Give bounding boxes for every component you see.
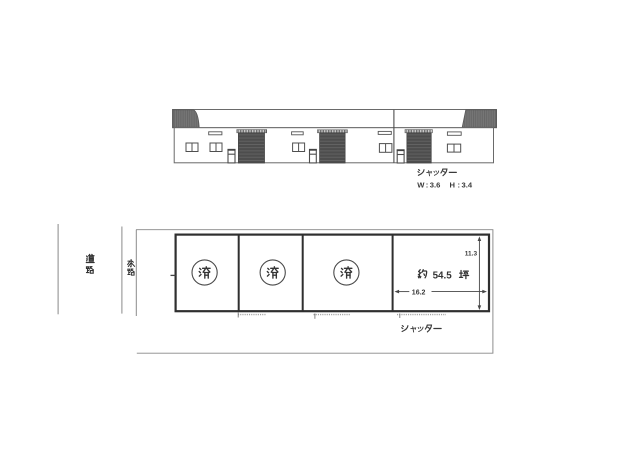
svg-text:3.6: 3.6 — [430, 181, 441, 190]
svg-text:54.5: 54.5 — [433, 271, 453, 282]
svg-text:W: W — [417, 181, 425, 190]
svg-text::: : — [458, 181, 461, 190]
svg-text::: : — [426, 181, 429, 190]
svg-text:11.3: 11.3 — [465, 250, 478, 257]
svg-text:16.2: 16.2 — [412, 290, 426, 297]
svg-text:3.4: 3.4 — [462, 181, 473, 190]
svg-text:H: H — [450, 181, 455, 190]
